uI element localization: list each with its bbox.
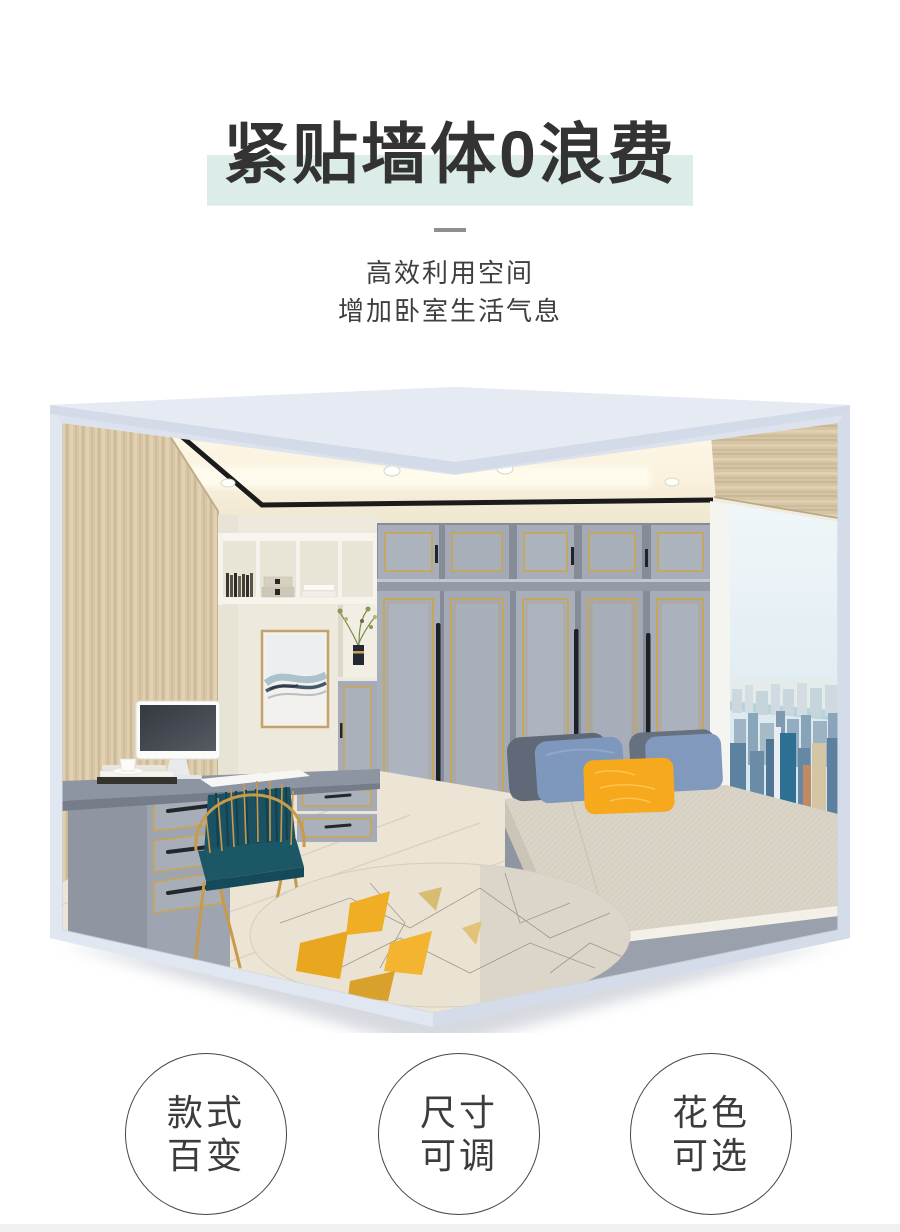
shelf-books [226, 573, 253, 597]
bedroom-render-svg [50, 383, 850, 1033]
feature-badges: 款式 百变 尺寸 可调 花色 可选 [0, 1053, 900, 1219]
subtitle-line-1: 高效利用空间 [0, 254, 900, 292]
feature-line: 可调 [420, 1134, 498, 1177]
feature-badge-style: 款式 百变 [125, 1053, 287, 1215]
feature-line: 百变 [167, 1134, 245, 1177]
feature-line: 尺寸 [420, 1091, 498, 1134]
subtitle-line-2: 增加卧室生活气息 [0, 292, 900, 330]
footer-strip [0, 1224, 900, 1232]
feature-badge-size: 尺寸 可调 [378, 1053, 540, 1215]
hero-illustration [50, 383, 850, 1033]
feature-line: 可选 [672, 1134, 750, 1177]
book-stack [97, 765, 177, 784]
page-title-row: 紧贴墙体0浪费 [0, 112, 900, 206]
page-title: 紧贴墙体0浪费 [207, 112, 693, 206]
header: 紧贴墙体0浪费 [0, 112, 900, 206]
wall-art [262, 631, 328, 727]
feature-line: 花色 [672, 1091, 750, 1134]
plant-niche [338, 605, 378, 677]
pillow-orange [583, 757, 675, 814]
shelf-boxes [262, 577, 294, 597]
wardrobe-top-cabinets [378, 525, 710, 579]
door-handle [436, 623, 441, 785]
room-interior [50, 413, 850, 1033]
open-shelving [218, 533, 378, 605]
page: 紧贴墙体0浪费 高效利用空间 增加卧室生活气息 [0, 0, 900, 1232]
title-divider [434, 228, 466, 232]
feature-line: 款式 [167, 1091, 245, 1134]
subtitle: 高效利用空间 增加卧室生活气息 [0, 254, 900, 330]
feature-badge-color: 花色 可选 [630, 1053, 792, 1215]
narrow-cabinet-door [338, 681, 377, 777]
